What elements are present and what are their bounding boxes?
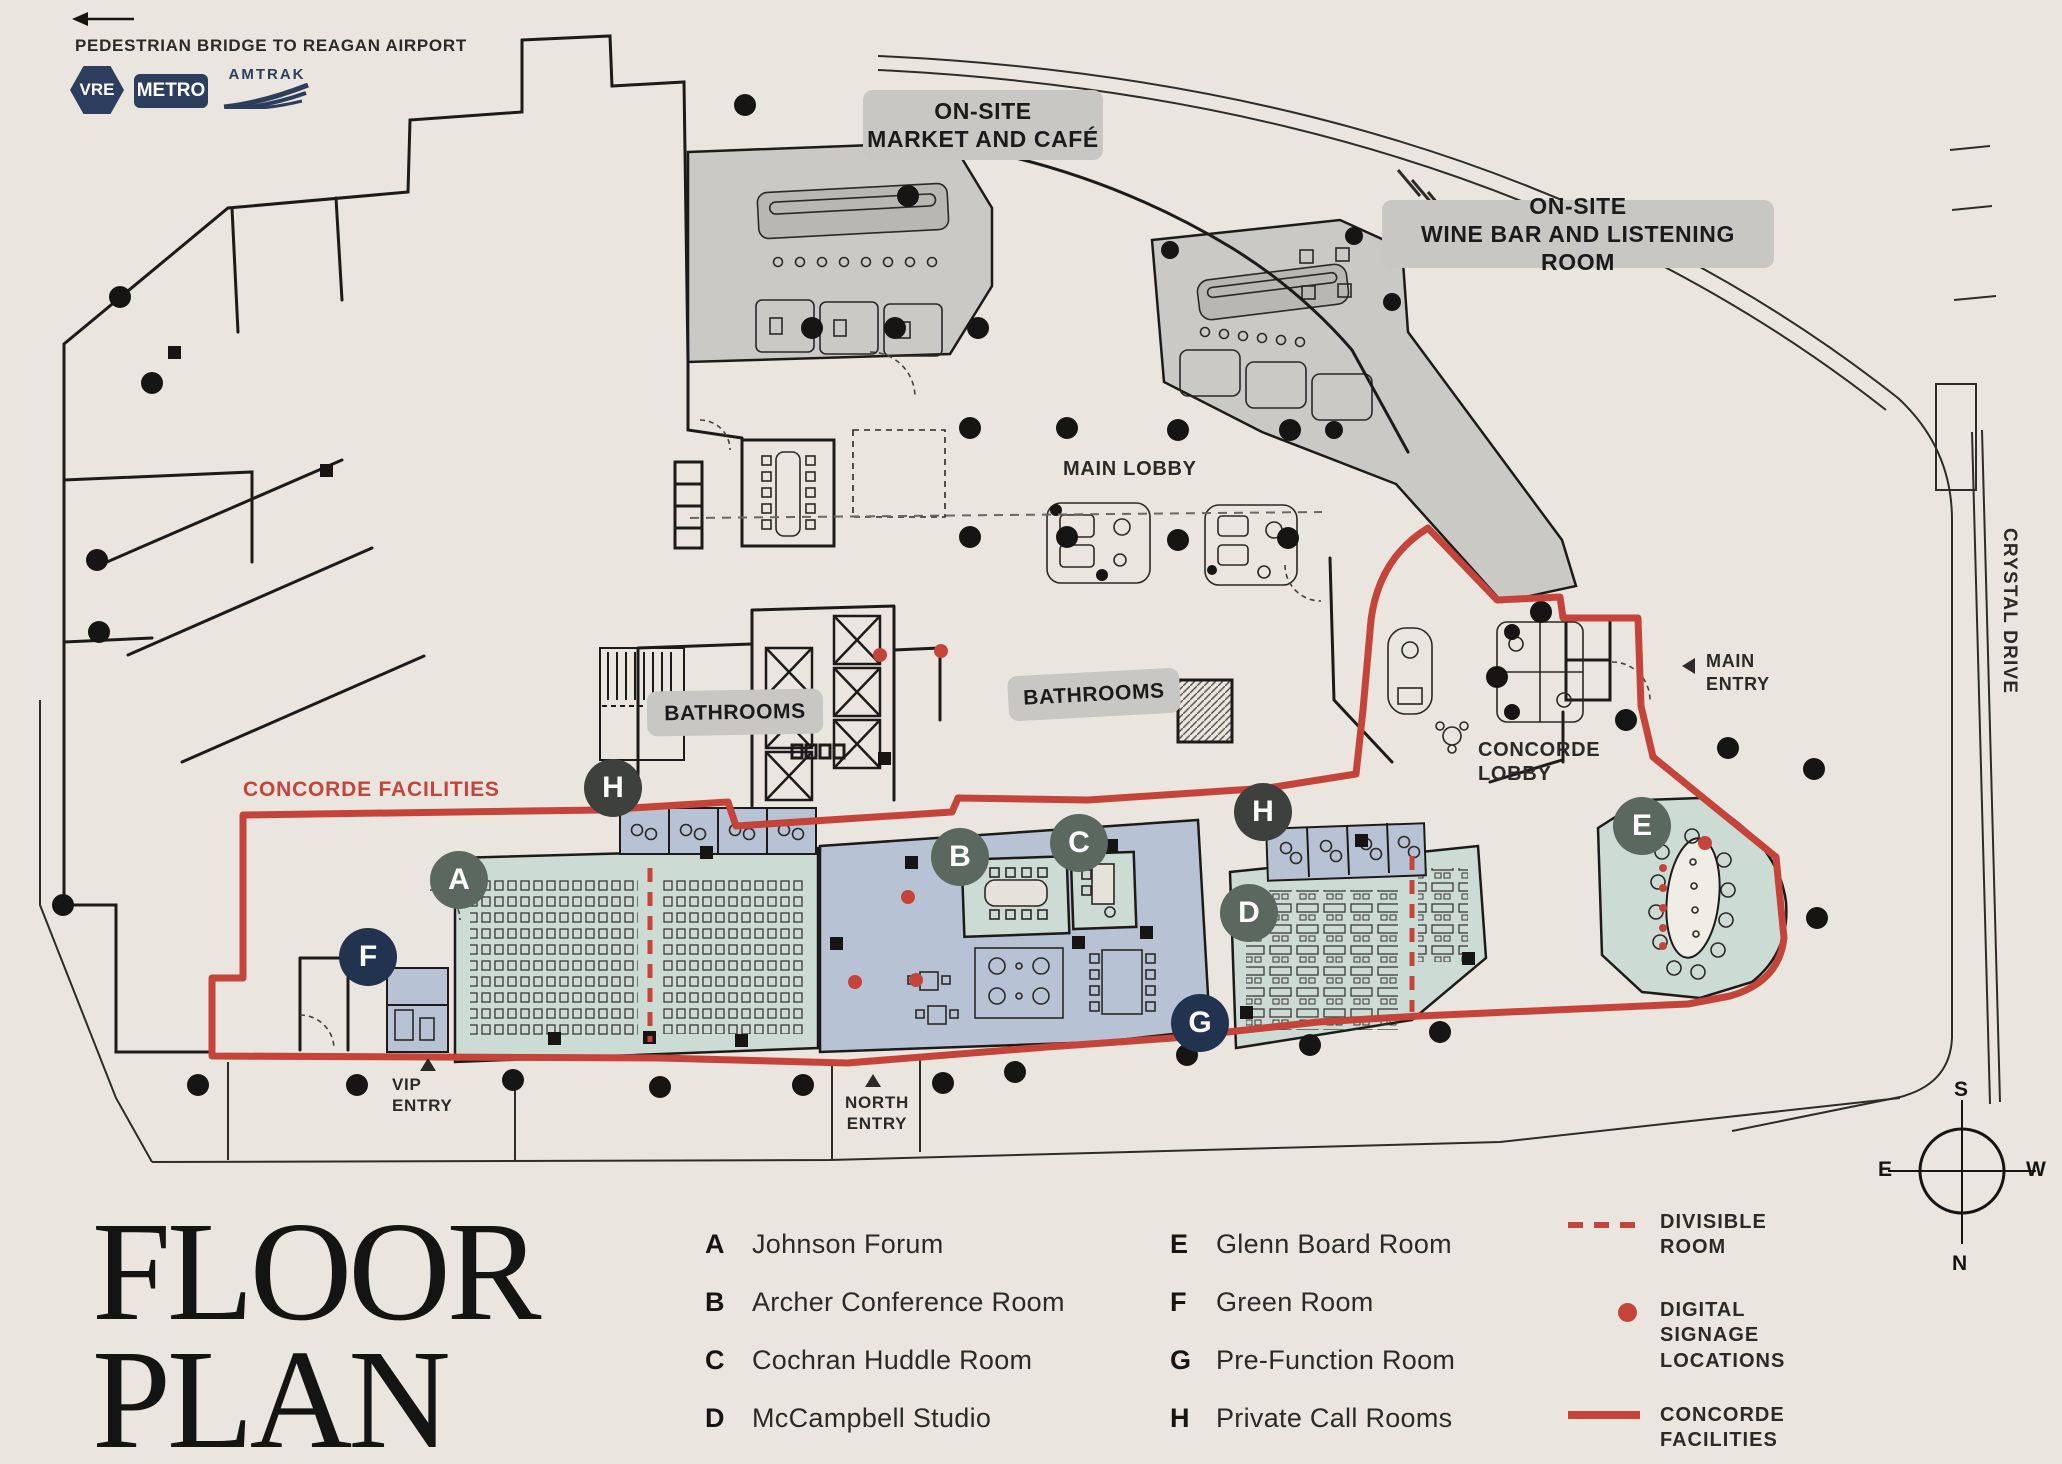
legend-name: Cochran Huddle Room — [752, 1345, 1032, 1376]
concorde-facilities-legend: CONCORDE FACILITIES — [1660, 1403, 1785, 1454]
marker-g: G — [1171, 994, 1229, 1052]
divisible-room-symbol — [1568, 1222, 1640, 1228]
floor-plan-page: PEDESTRIAN BRIDGE TO REAGAN AIRPORT VRE … — [0, 0, 2062, 1464]
legend-letter: D — [705, 1403, 725, 1434]
bathrooms-right-label: BATHROOMS — [1007, 668, 1181, 722]
compass-east: E — [1878, 1158, 1892, 1182]
amtrak-wordmark: AMTRAK — [222, 66, 312, 83]
lobby-meeting-room — [762, 452, 815, 536]
legend-name: McCampbell Studio — [752, 1403, 991, 1434]
legend-letter: F — [1170, 1287, 1187, 1318]
compass-west: W — [2026, 1158, 2046, 1182]
main-lobby-label: MAIN LOBBY — [1063, 458, 1197, 481]
marker-h-east: H — [1234, 783, 1292, 841]
legend-letter: B — [705, 1287, 725, 1318]
legend-name: Glenn Board Room — [1216, 1229, 1452, 1260]
lobby-lounge-furniture — [690, 430, 1322, 585]
marker-d: D — [1220, 884, 1278, 942]
concorde-facilities-label: CONCORDE FACILITIES — [243, 778, 500, 802]
compass-south: S — [1954, 1078, 1968, 1102]
legend-name: Archer Conference Room — [752, 1287, 1065, 1318]
concorde-lobby-label: CONCORDE LOBBY — [1478, 738, 1600, 786]
marker-f: F — [339, 928, 397, 986]
left-arrow-icon — [72, 10, 136, 28]
digital-signage-legend: DIGITAL SIGNAGE LOCATIONS — [1660, 1298, 1785, 1374]
page-title: FLOOR PLAN — [92, 1208, 538, 1464]
legend-name: Green Room — [1216, 1287, 1374, 1318]
main-entry-label: MAIN ENTRY — [1706, 650, 1770, 695]
marker-e: E — [1613, 797, 1671, 855]
pedestrian-bridge-label: PEDESTRIAN BRIDGE TO REAGAN AIRPORT — [75, 36, 467, 56]
legend-name: Private Call Rooms — [1216, 1403, 1452, 1434]
legend-letter: G — [1170, 1345, 1191, 1376]
compass-rose — [1888, 1100, 2036, 1244]
legend-name: Pre-Function Room — [1216, 1345, 1455, 1376]
legend-letter: C — [705, 1345, 725, 1376]
bathrooms-left-label: BATHROOMS — [647, 688, 824, 736]
marker-b: B — [931, 828, 989, 886]
compass-north: N — [1952, 1252, 1967, 1276]
divisible-room-legend: DIVISIBLE ROOM — [1660, 1210, 1767, 1261]
market-cafe-label: ON-SITE MARKET AND CAFÉ — [863, 90, 1103, 160]
north-entry-label: NORTH ENTRY — [845, 1092, 909, 1135]
wine-bar-label: ON-SITE WINE BAR AND LISTENING ROOM — [1382, 200, 1774, 268]
marker-h-west: H — [584, 759, 642, 817]
legend-letter: E — [1170, 1229, 1188, 1260]
marker-a: A — [430, 851, 488, 909]
concorde-facilities-symbol — [1568, 1411, 1640, 1419]
amtrak-badge: AMTRAK — [222, 66, 312, 109]
crystal-drive-label: CRYSTAL DRIVE — [1998, 528, 2020, 694]
legend-letter: A — [705, 1229, 725, 1260]
vip-entry-label: VIP ENTRY — [392, 1074, 453, 1117]
digital-signage-symbol — [1618, 1303, 1637, 1322]
vip-entry-arrow-icon — [420, 1058, 436, 1071]
amtrak-swoosh-icon — [222, 83, 312, 109]
main-entry-arrow-icon — [1682, 658, 1695, 674]
north-entry-arrow-icon — [865, 1074, 881, 1087]
legend-letter: H — [1170, 1403, 1190, 1434]
legend-name: Johnson Forum — [752, 1229, 944, 1260]
marker-c: C — [1050, 814, 1108, 872]
concorde-lobby-furniture — [1388, 622, 1583, 753]
metro-badge: METRO — [134, 74, 208, 108]
